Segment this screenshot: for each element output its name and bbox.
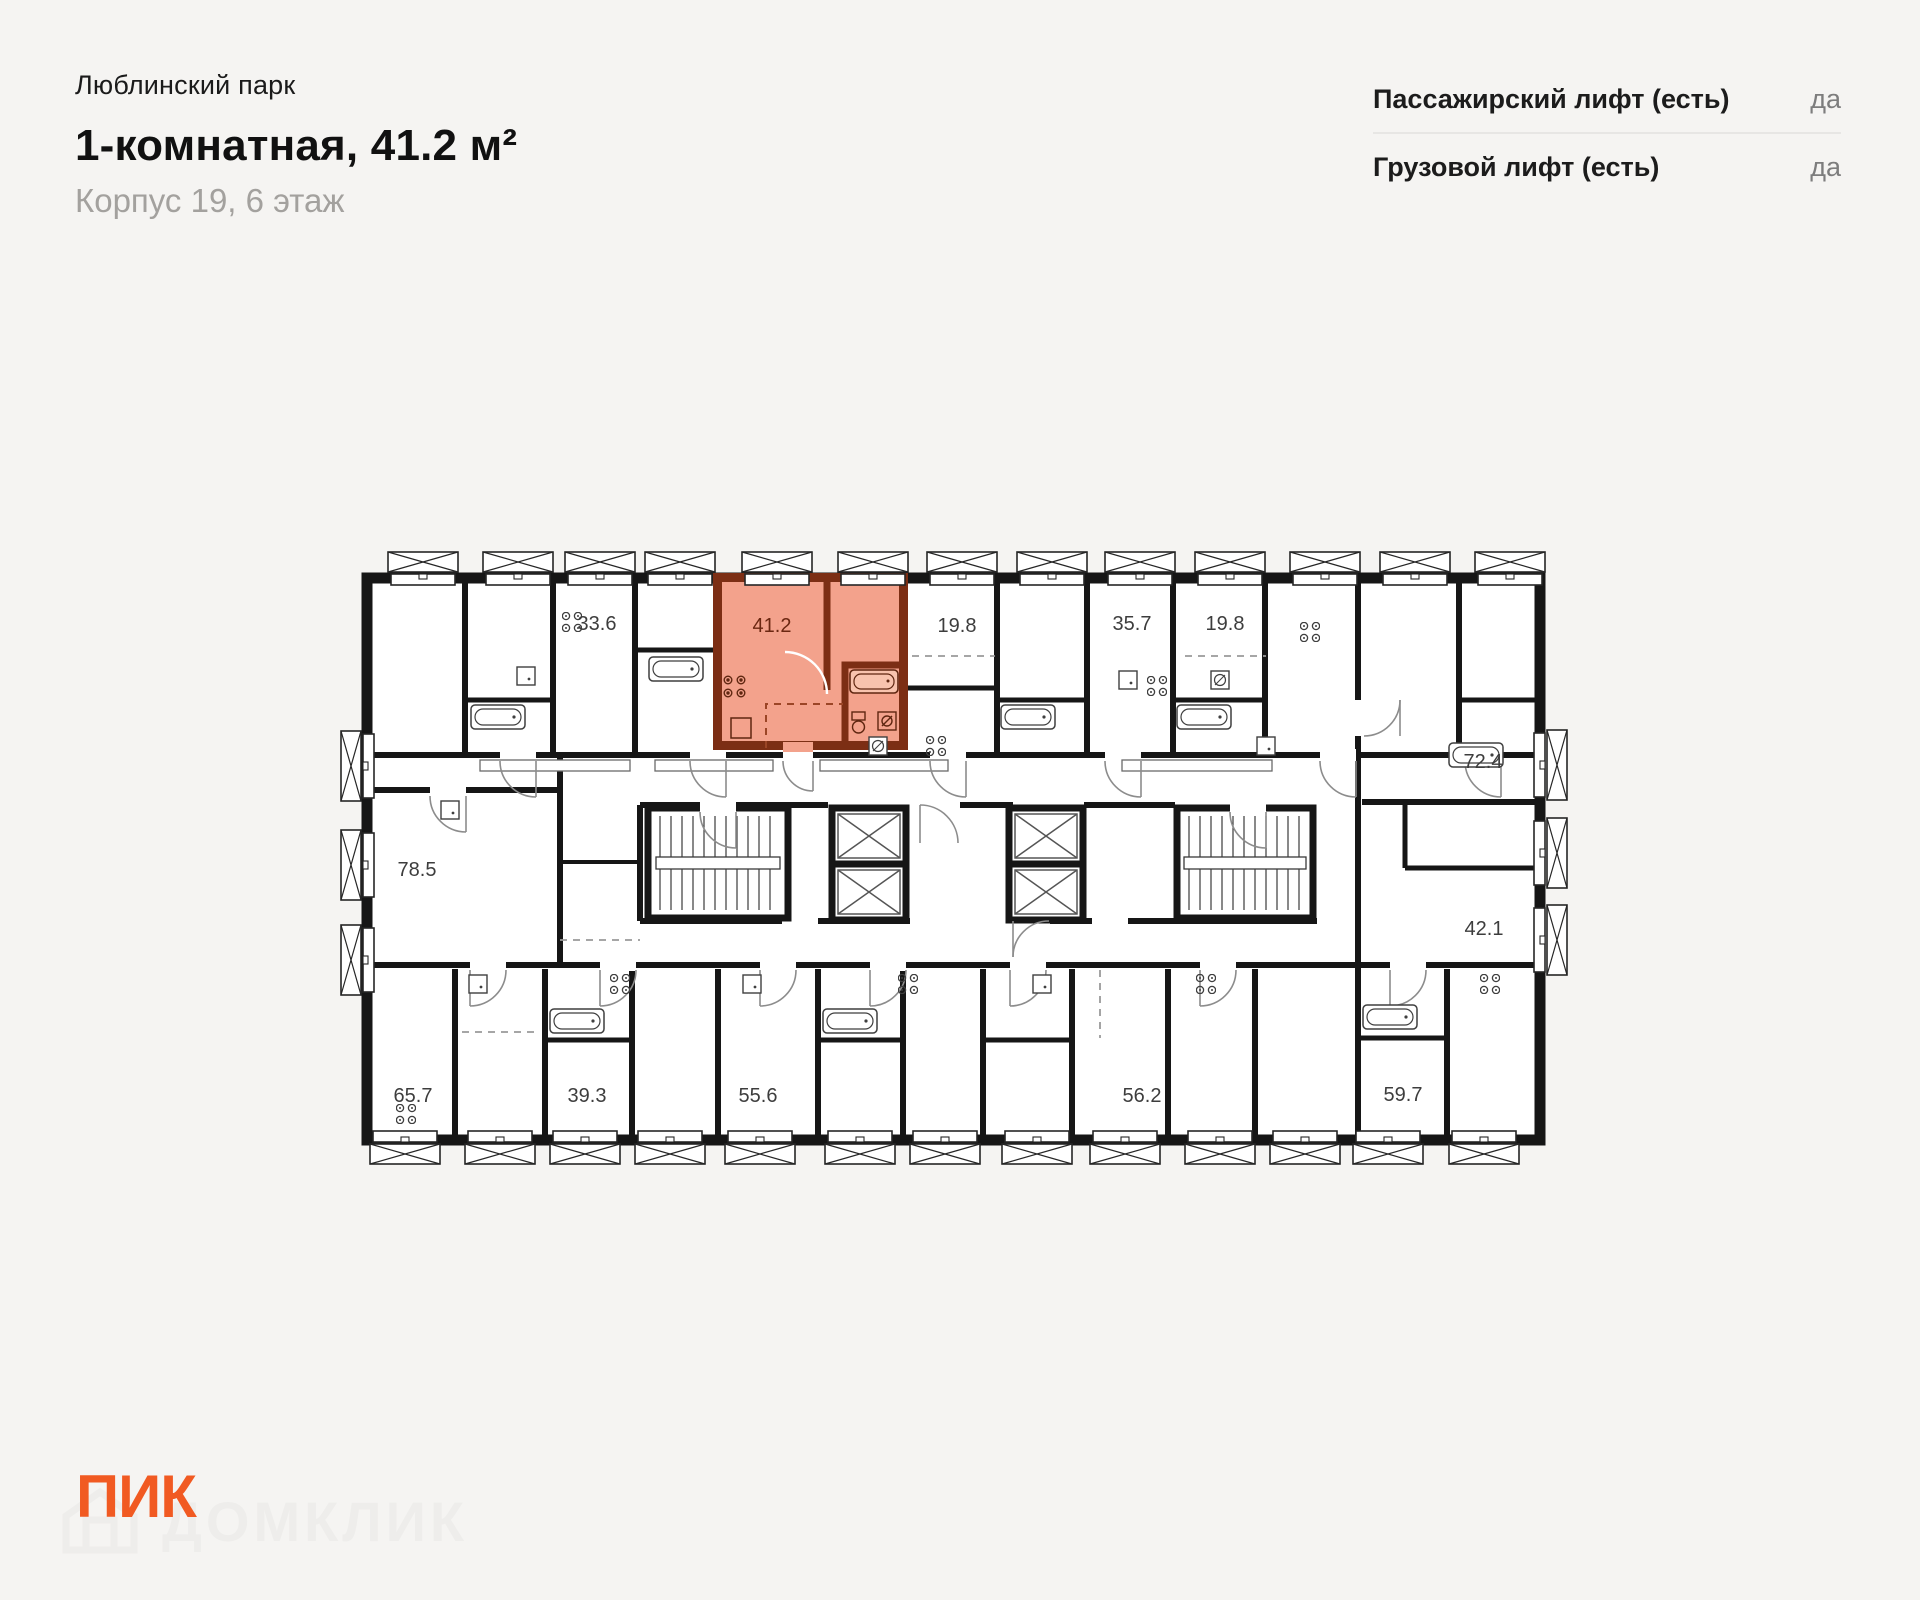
washer-icon	[1211, 671, 1229, 689]
bath-icon	[1001, 705, 1055, 729]
unit-area-label: 33.6	[578, 613, 617, 635]
bath-icon	[550, 1009, 604, 1033]
sink-icon	[469, 975, 487, 993]
sink-icon	[743, 975, 761, 993]
elevator-shafts-left	[832, 808, 906, 920]
unit-area-label: 65.7	[394, 1085, 433, 1107]
bath-icon	[850, 670, 898, 693]
duct-trims	[480, 760, 1272, 771]
sink-icon	[1033, 975, 1051, 993]
floorplan-page: Люблинский парк 1-комнатная, 41.2 м² Кор…	[0, 0, 1920, 1600]
sink-icon	[1257, 737, 1275, 755]
washer-icon	[869, 737, 887, 755]
unit-area-label-highlighted[interactable]: 41.2	[753, 615, 792, 637]
sink-icon	[1119, 671, 1137, 689]
unit-area-label: 19.8	[938, 615, 977, 637]
unit-area-label: 19.8	[1206, 613, 1245, 635]
bath-icon	[649, 657, 703, 681]
highlighted-unit[interactable]	[713, 573, 908, 761]
bath-icon	[1177, 705, 1231, 729]
pik-logo: ПИК	[76, 1462, 196, 1531]
bath-icon	[823, 1009, 877, 1033]
unit-area-label: 39.3	[568, 1085, 607, 1107]
bath-icon	[1363, 1005, 1417, 1029]
bath-icon	[471, 705, 525, 729]
floorplan-drawing: 33.6 41.2 19.8 35.7 19.8 72.4 78.5 42.1 …	[0, 0, 1920, 1600]
unit-area-label: 42.1	[1465, 918, 1504, 940]
windows-right	[1534, 730, 1567, 975]
building-outline	[362, 573, 1545, 1145]
sink-icon	[517, 667, 535, 685]
staircase-right	[1177, 801, 1313, 918]
unit-area-label: 55.6	[739, 1085, 778, 1107]
staircase-left	[648, 801, 788, 918]
unit-area-label: 59.7	[1384, 1084, 1423, 1106]
sink-icon	[441, 801, 459, 819]
elevator-shafts-right	[1009, 808, 1083, 920]
unit-area-label: 78.5	[398, 859, 437, 881]
unit-area-label: 72.4	[1464, 751, 1503, 773]
watermark-text: ДОМКЛИК	[162, 1489, 468, 1554]
unit-area-label: 35.7	[1113, 613, 1152, 635]
windows-left	[341, 731, 374, 995]
unit-area-label: 56.2	[1123, 1085, 1162, 1107]
